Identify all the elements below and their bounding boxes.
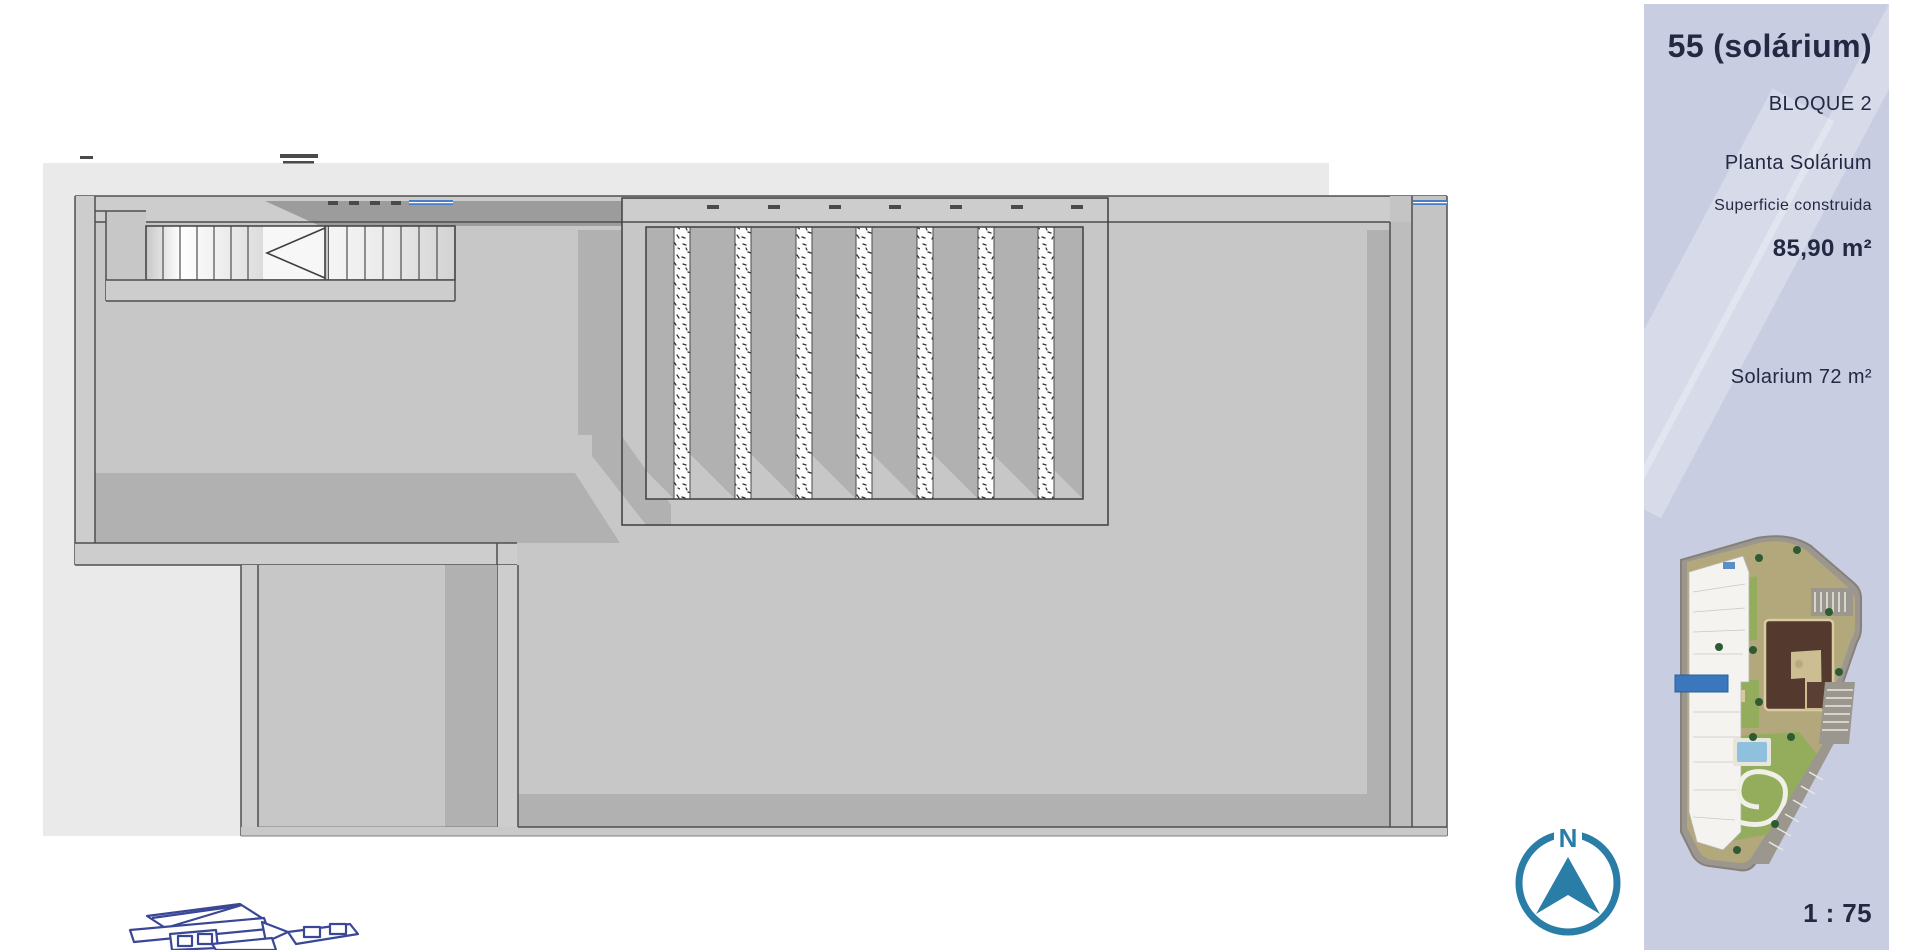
building-outline-sketch xyxy=(92,896,364,950)
left-wall xyxy=(75,196,95,565)
floorplan-drawing xyxy=(0,0,1660,950)
compass-letter: N xyxy=(1559,823,1578,853)
block-label: BLOQUE 2 xyxy=(1769,93,1872,116)
right-wall xyxy=(1390,196,1447,836)
top-wall xyxy=(75,196,1447,226)
site-building-strip xyxy=(1689,556,1749,850)
drawing-scale: 1 : 75 xyxy=(1803,898,1872,929)
solarium-area-value: Solarium 72 m² xyxy=(1731,366,1872,389)
void-notch xyxy=(73,565,241,836)
unit-title: 55 (solárium) xyxy=(1668,28,1872,65)
built-area-label: Superficie construida xyxy=(1714,197,1872,215)
site-brown-building xyxy=(1765,620,1833,710)
bottom-wall xyxy=(241,827,1447,836)
pergola xyxy=(622,198,1108,525)
lower-left-room xyxy=(241,565,497,836)
north-compass-icon: N xyxy=(1503,815,1633,940)
site-window-accent xyxy=(1723,562,1735,569)
plan-sheet: N 55 (solárium) BLOQUE 2 Planta Solárium… xyxy=(0,0,1920,950)
site-pool xyxy=(1733,738,1771,766)
info-panel: 55 (solárium) BLOQUE 2 Planta Solárium S… xyxy=(1644,4,1889,950)
built-area-value: 85,90 m² xyxy=(1773,235,1872,263)
site-plan-thumbnail xyxy=(1679,532,1863,873)
mid-vertical-wall xyxy=(497,543,518,836)
stair-flight-lower xyxy=(329,226,455,280)
mid-horizontal-wall xyxy=(75,543,517,565)
floor-name: Planta Solárium xyxy=(1725,152,1872,175)
stair-direction-zone xyxy=(263,226,325,280)
unit-location-highlight xyxy=(1675,675,1728,692)
